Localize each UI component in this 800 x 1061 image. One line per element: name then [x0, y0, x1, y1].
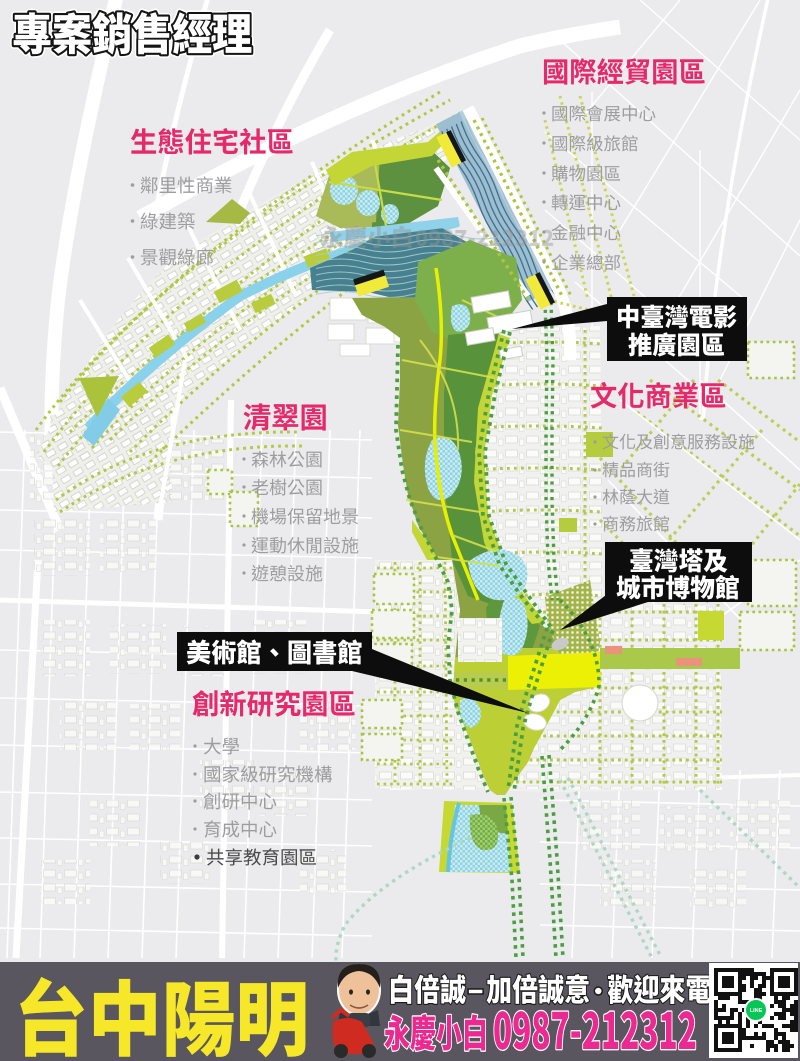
svg-text:LINE: LINE: [750, 1008, 763, 1014]
